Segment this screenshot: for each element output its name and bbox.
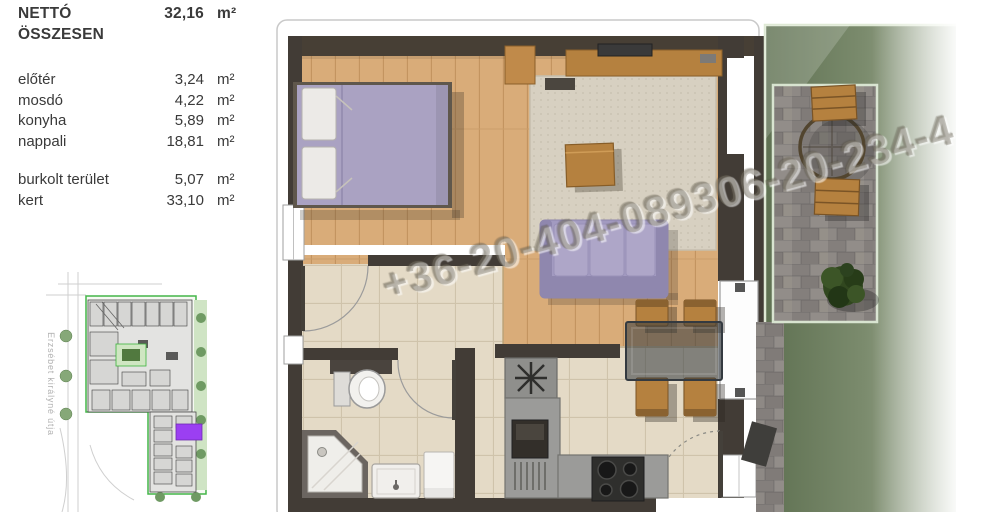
dining-table	[626, 322, 722, 380]
site-trees-left	[60, 330, 72, 420]
vanity-sink	[372, 464, 420, 498]
area-row: mosdó 4,22 m²	[18, 91, 242, 112]
site-courtyard-inner	[122, 349, 140, 361]
total-value: 32,16	[150, 4, 204, 45]
area-total-row: NETTÓ ÖSSZESEN 32,16 m²	[18, 4, 242, 45]
terrace-chair	[814, 178, 859, 216]
tv	[598, 44, 652, 56]
area-row: burkolt terület 5,07 m²	[18, 170, 242, 191]
pillow	[302, 88, 336, 140]
floor-plan	[277, 20, 773, 512]
garden	[741, 0, 1000, 512]
area-row: konyha 5,89 m²	[18, 111, 242, 132]
outdoor-areas: burkolt terület 5,07 m² kert 33,10 m²	[18, 170, 242, 211]
total-unit: m²	[210, 4, 242, 45]
area-row: kert 33,10 m²	[18, 191, 242, 212]
walkway	[756, 322, 784, 512]
street-name-label: Erzsébet királyné útja	[46, 332, 56, 436]
total-label: NETTÓ ÖSSZESEN	[18, 4, 144, 45]
room-areas: előtér 3,24 m² mosdó 4,22 m² konyha 5,89…	[18, 70, 242, 152]
bed	[293, 82, 464, 220]
site-plan-map	[46, 272, 207, 512]
dining-set	[626, 300, 725, 422]
site-highlighted-unit	[176, 424, 202, 440]
area-row: nappali 18,81 m²	[18, 132, 242, 153]
sink-icon	[515, 362, 547, 394]
terrace-door	[720, 281, 758, 399]
coffee-table	[565, 143, 623, 193]
right-wall-window	[727, 58, 754, 154]
sofa	[540, 220, 678, 305]
pillow	[302, 147, 336, 199]
ac-unit	[545, 78, 575, 90]
toilet	[334, 370, 385, 408]
area-table: NETTÓ ÖSSZESEN 32,16 m² előtér 3,24 m² m…	[18, 4, 242, 211]
area-row: előtér 3,24 m²	[18, 70, 242, 91]
floorplan-sheet: NETTÓ ÖSSZESEN 32,16 m² előtér 3,24 m² m…	[0, 0, 1000, 512]
terrace-chair	[811, 85, 857, 121]
